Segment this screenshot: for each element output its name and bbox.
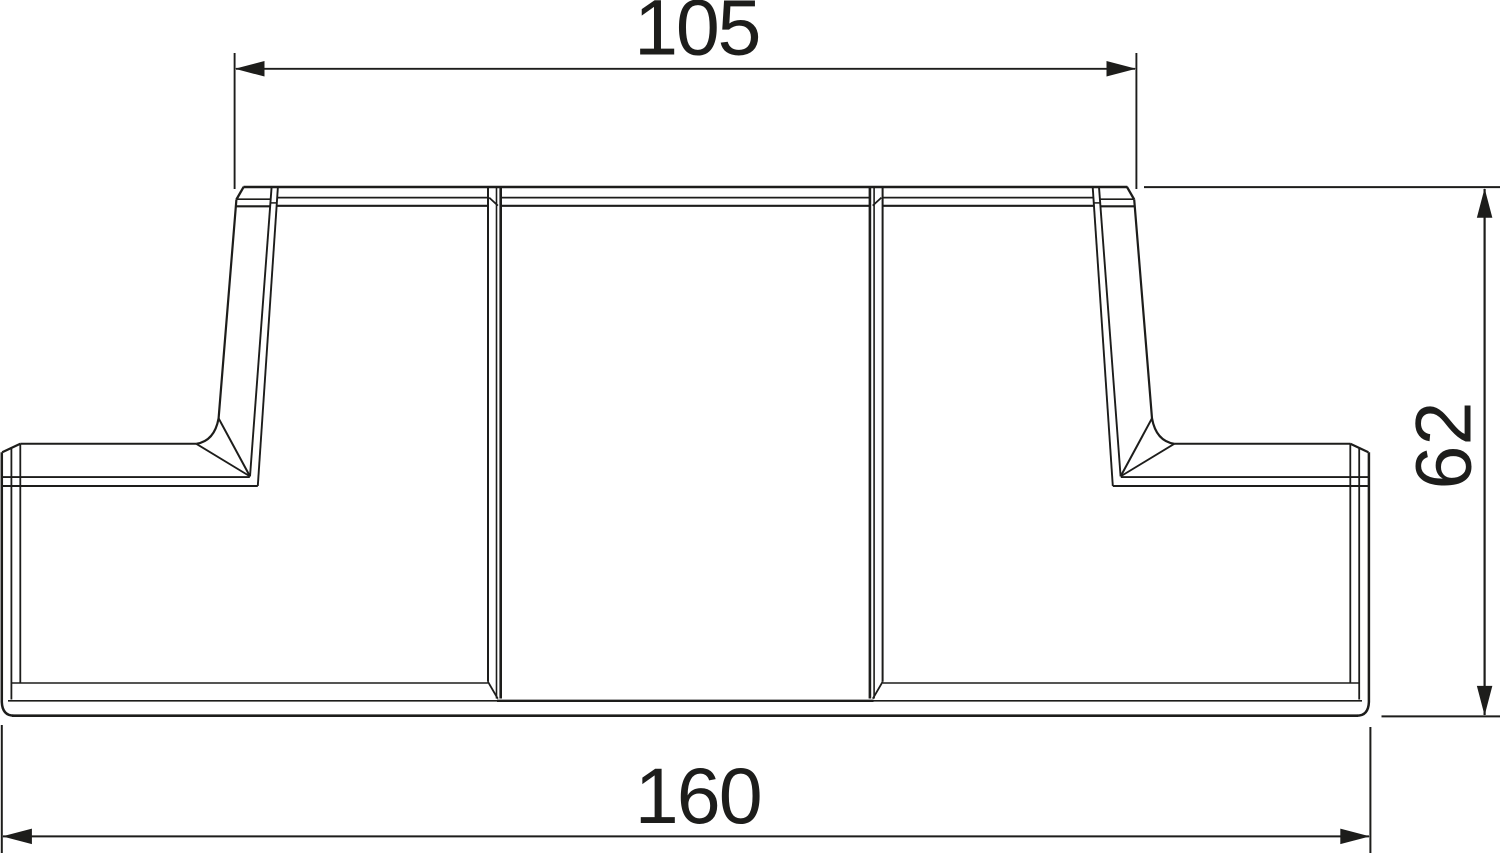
svg-text:105: 105 [634, 0, 759, 71]
svg-text:160: 160 [635, 751, 761, 840]
svg-text:62: 62 [1399, 402, 1488, 490]
